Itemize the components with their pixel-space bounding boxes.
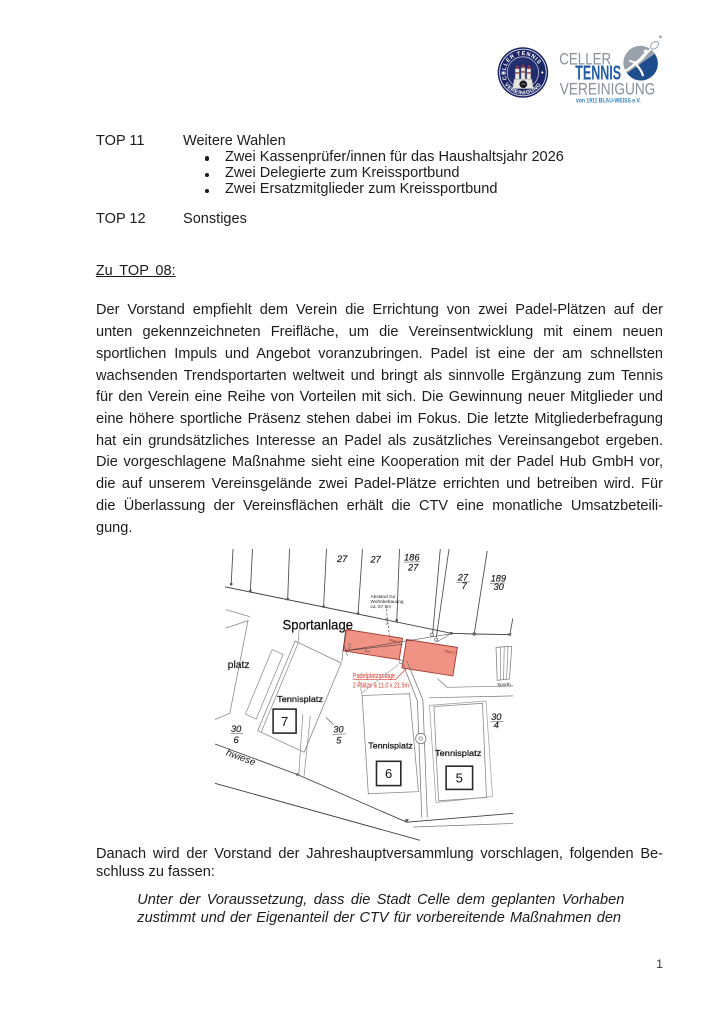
svg-text:5: 5 [456, 771, 463, 786]
svg-text:6: 6 [385, 766, 392, 781]
svg-text:von 1911 BLAU-WEISS e.V.: von 1911 BLAU-WEISS e.V. [576, 97, 641, 104]
svg-text:Tennisplatz: Tennisplatz [277, 694, 323, 704]
svg-text:6: 6 [234, 735, 240, 745]
svg-text:30: 30 [333, 724, 344, 734]
svg-text:5: 5 [336, 735, 342, 745]
svg-text:27: 27 [336, 554, 348, 564]
svg-text:Sportanlage: Sportanlage [283, 618, 354, 633]
svg-text:27: 27 [407, 563, 419, 573]
svg-text:30: 30 [231, 724, 242, 734]
svg-text:Tennisplatz: Tennisplatz [368, 741, 413, 751]
svg-text:hwiese: hwiese [224, 748, 257, 769]
svg-text:57,5: 57,5 [384, 618, 389, 625]
svg-text:7: 7 [281, 714, 288, 729]
svg-text:VEREINIGUNG: VEREINIGUNG [560, 80, 656, 99]
svg-text:ca. 57,5m: ca. 57,5m [371, 604, 392, 609]
svg-text:2 Plätze à 11.0 x 21.5m: 2 Plätze à 11.0 x 21.5m [353, 681, 409, 690]
svg-text:Tennisplatz: Tennisplatz [435, 748, 481, 758]
svg-text:186: 186 [404, 553, 420, 563]
svg-text:platz: platz [228, 660, 250, 671]
svg-text:27: 27 [370, 555, 382, 565]
